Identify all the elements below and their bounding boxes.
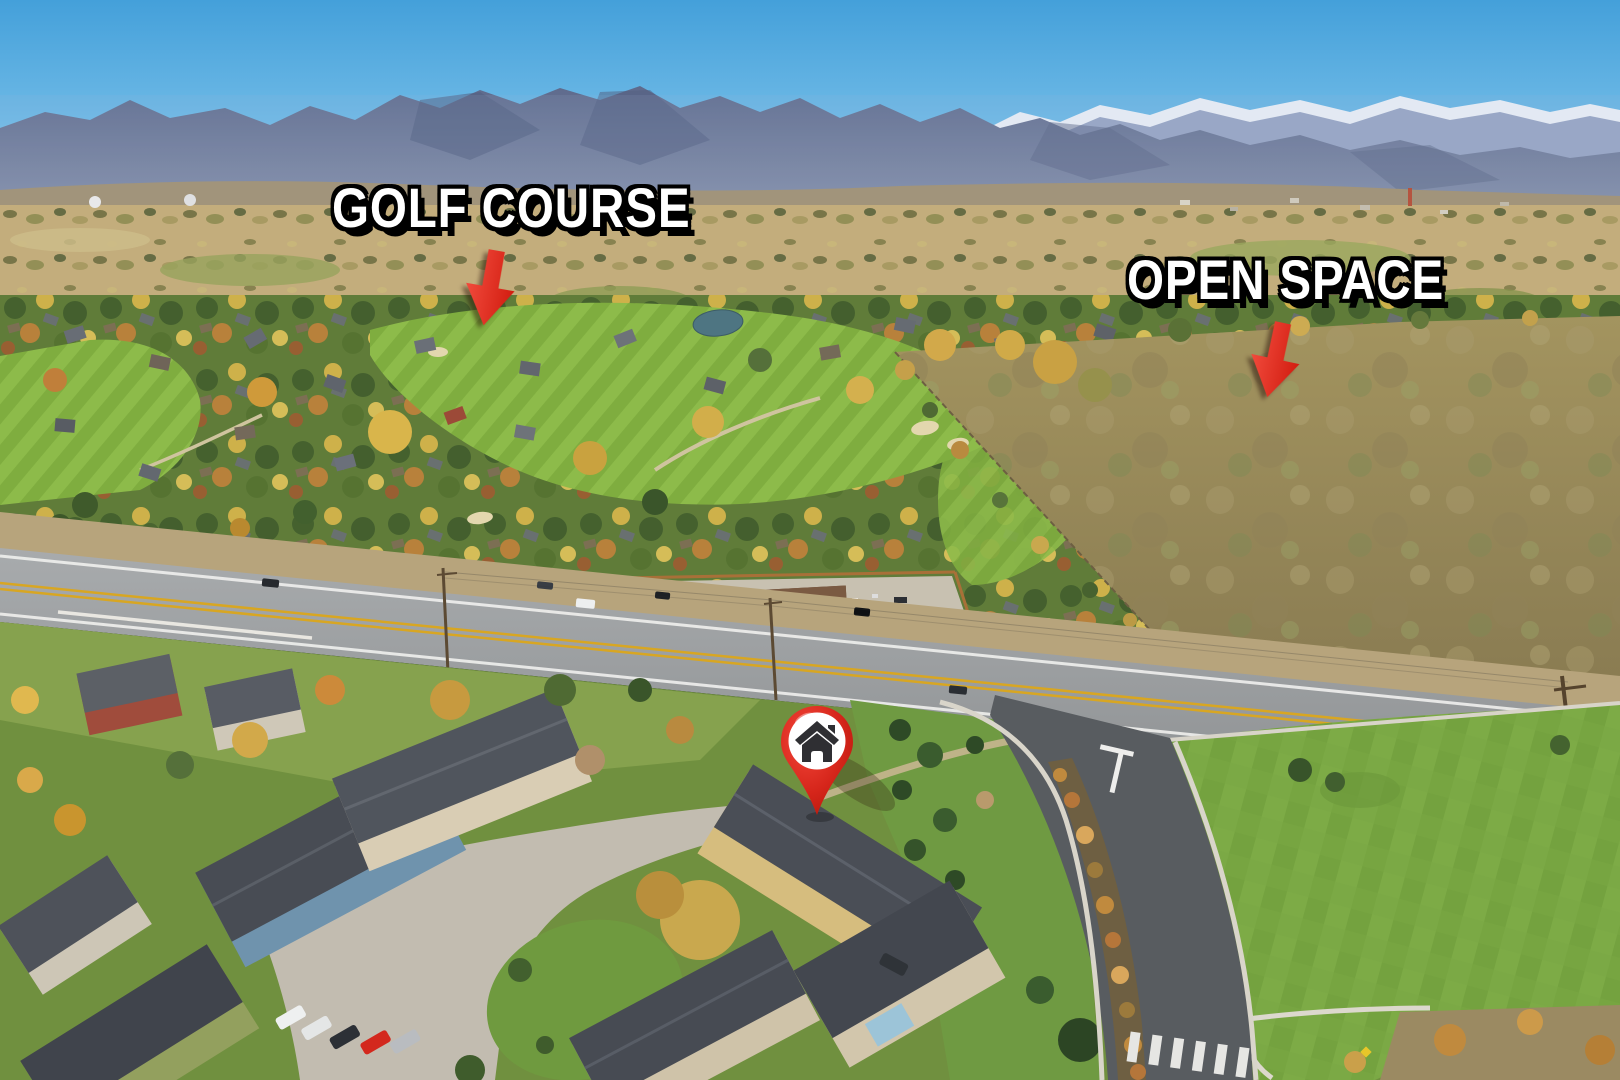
golf-course-down-arrow-icon — [448, 243, 531, 336]
open-space-label: OPEN SPACE — [1127, 252, 1444, 308]
mountains — [0, 86, 1620, 218]
home-pin-icon — [762, 700, 912, 825]
golf-course-label: GOLF COURSE — [332, 180, 690, 236]
aerial-photo-scene — [0, 0, 1620, 1080]
aerial-photo: GOLF COURSE OPEN SPACE — [0, 0, 1620, 1080]
